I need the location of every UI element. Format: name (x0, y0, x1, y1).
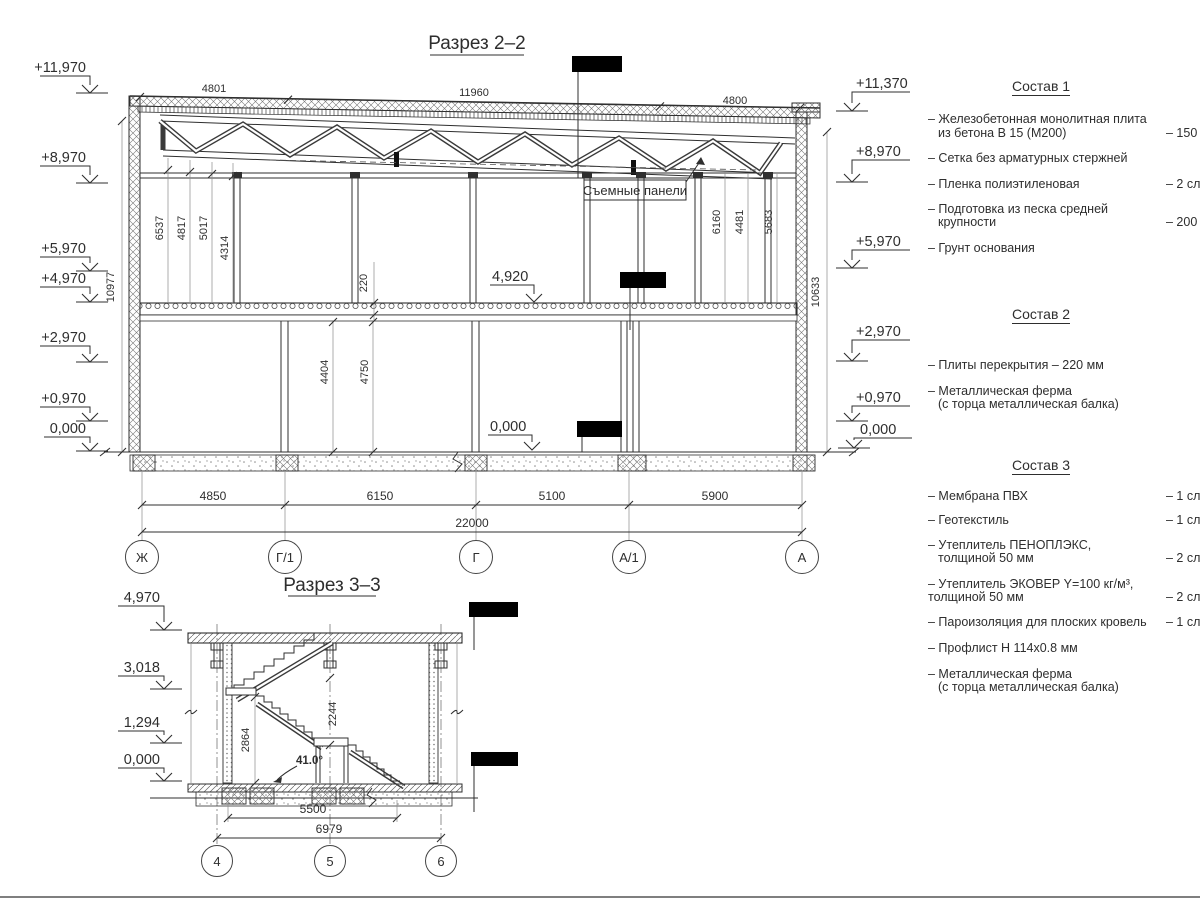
elev3-4970: 4,970 (124, 590, 160, 606)
vertical-dims-right: 6160 4481 5683 (711, 172, 777, 303)
dim-4817: 4817 (176, 216, 188, 240)
elevation-marks-3-3: 4,970 3,018 1,294 0,000 (118, 590, 182, 781)
sostav2-title: Состав 2 (1012, 306, 1070, 324)
drawing-sheet: Разрез 2–2 Съемные панели (0, 0, 1200, 900)
elev-0000-int: 0,000 (490, 419, 526, 435)
dim-4481: 4481 (734, 210, 746, 234)
dim-5017: 5017 (198, 216, 210, 240)
note-item: – Подготовка из песка средней (928, 202, 1108, 216)
vertical-dims-left: 6537 4817 5017 4314 (154, 158, 237, 303)
elev-5970L: +5,970 (41, 241, 86, 257)
axis-6: 6 (437, 854, 444, 869)
note-item: – Пленка полиэтиленовая (928, 177, 1080, 191)
stair-angle: 41.0° (296, 755, 323, 767)
svg-text:220: 220 (358, 274, 370, 292)
dim-4800: 4800 (723, 95, 747, 107)
dim-4404: 4404 (319, 360, 331, 384)
note-item: – Утеплитель ПЕНОПЛЭКС, (928, 538, 1091, 552)
lower-dims: 4404 4750 (319, 318, 377, 456)
dim-6150: 6150 (367, 489, 394, 503)
elev-0970L: +0,970 (41, 391, 86, 407)
elev-0000L: 0,000 (50, 421, 86, 437)
stair-left-wall (223, 643, 232, 783)
redaction-box (620, 272, 666, 288)
redaction-box (572, 56, 622, 72)
elevation-marks-right: +11,370 +8,970 +5,970 +2,970 +0,970 0,00… (836, 76, 912, 448)
dim-6160: 6160 (711, 210, 723, 234)
dim-2244: 2244 (327, 702, 339, 726)
dim-6979: 6979 (316, 822, 343, 836)
section-2-2-title: Разрез 2–2 (428, 33, 526, 54)
dim-2864: 2864 (240, 728, 252, 752)
note-item: – Металлическая ферма (928, 384, 1072, 398)
note-item: – Грунт основания (928, 241, 1035, 255)
note-item: – Мембрана ПВХ (928, 489, 1028, 503)
right-wall (796, 112, 807, 452)
elev-2970L: +2,970 (41, 330, 86, 346)
axis-5: 5 (326, 854, 333, 869)
note-item: – Пароизоляция для плоских кровель (928, 615, 1147, 629)
interior-elevation-marks: 4,920 0,000 (488, 269, 542, 450)
dim-6537: 6537 (154, 216, 166, 240)
stair-right-wall (429, 643, 438, 783)
axis-bubbles-2-2: Ж Г/1 Г А/1 А (126, 541, 819, 574)
dim-5100: 5100 (539, 489, 566, 503)
elev-4920: 4,920 (492, 269, 528, 285)
elev-8970R: +8,970 (856, 144, 901, 160)
mid-landing (314, 738, 348, 746)
axis-4: 4 (213, 854, 220, 869)
left-wall (129, 96, 140, 452)
elev-11370: +11,370 (856, 76, 908, 92)
redaction-box (577, 421, 622, 437)
axis-zh: Ж (136, 550, 148, 565)
svg-text:10633: 10633 (810, 277, 822, 308)
elev-0970R: +0,970 (856, 390, 901, 406)
redaction-box (471, 752, 518, 766)
floor-slab (140, 303, 797, 321)
elevation-marks-left: +11,970 +8,970 +5,970 +4,970 +2,970 +0,9… (34, 60, 108, 451)
dim-5900: 5900 (702, 489, 729, 503)
bottom-dims: 4850 6150 5100 5900 22000 (138, 472, 806, 540)
height-dim-right: 10633 (810, 128, 831, 456)
section-3-3-title: Разрез 3–3 (283, 575, 381, 596)
note-item: – Железобетонная монолитная плита (928, 112, 1147, 126)
sostav1-title: Состав 1 (1012, 78, 1070, 96)
note-item: – Металлическая ферма (928, 667, 1072, 681)
elev3-3018: 3,018 (124, 660, 160, 676)
note-item: – Геотекстиль (928, 513, 1009, 527)
dim-4850: 4850 (200, 489, 227, 503)
dim-5683: 5683 (763, 210, 775, 234)
axis-a1: А/1 (619, 550, 639, 565)
foundation (100, 448, 859, 472)
dim-11960: 11960 (459, 87, 489, 99)
roof (130, 96, 820, 124)
dim-5500: 5500 (300, 802, 327, 816)
elev3-0000: 0,000 (124, 752, 160, 768)
elev3-1294: 1,294 (124, 715, 160, 731)
axis-bubbles-3-3: 4 5 6 (202, 846, 457, 877)
elev-4970L: +4,970 (41, 271, 86, 287)
dim-22000: 22000 (455, 516, 489, 530)
axis-g1: Г/1 (276, 550, 294, 565)
note-item: – Утеплитель ЭКОВЕР Y=100 кг/м³, (928, 577, 1133, 591)
upper-landing (226, 688, 256, 695)
axis-g: Г (472, 550, 479, 565)
sostav3-title: Состав 3 (1012, 457, 1070, 475)
panel-label: Съемные панели (583, 183, 687, 198)
elev-5970R: +5,970 (856, 234, 901, 250)
stair-top-slab (188, 633, 462, 643)
redaction-box (469, 602, 518, 617)
axis-a: А (798, 550, 807, 565)
roof-truss (160, 115, 795, 179)
redaction-boxes-3-3 (469, 602, 518, 812)
elev-0000R: 0,000 (860, 422, 896, 438)
height-dim-left: 10977 (105, 117, 126, 456)
note-item: – Профлист Н 114х0.8 мм (928, 641, 1078, 655)
note-item: – Плиты перекрытия – 220 мм (928, 358, 1104, 372)
note-item: – Сетка без арматурных стержней (928, 151, 1127, 165)
section-2-2: Разрез 2–2 Съемные панели (34, 33, 912, 574)
notes-column: Состав 1 – Железобетонная монолитная пли… (920, 0, 1200, 760)
elev-11970: +11,970 (34, 60, 86, 76)
elev-8970L: +8,970 (41, 150, 86, 166)
dim-4750: 4750 (359, 360, 371, 384)
dim-4314: 4314 (219, 236, 231, 260)
elev-2970R: +2,970 (856, 324, 901, 340)
section-3-3: Разрез 3–3 (118, 575, 518, 877)
svg-text:10977: 10977 (105, 272, 117, 303)
dim-4801: 4801 (202, 83, 226, 95)
